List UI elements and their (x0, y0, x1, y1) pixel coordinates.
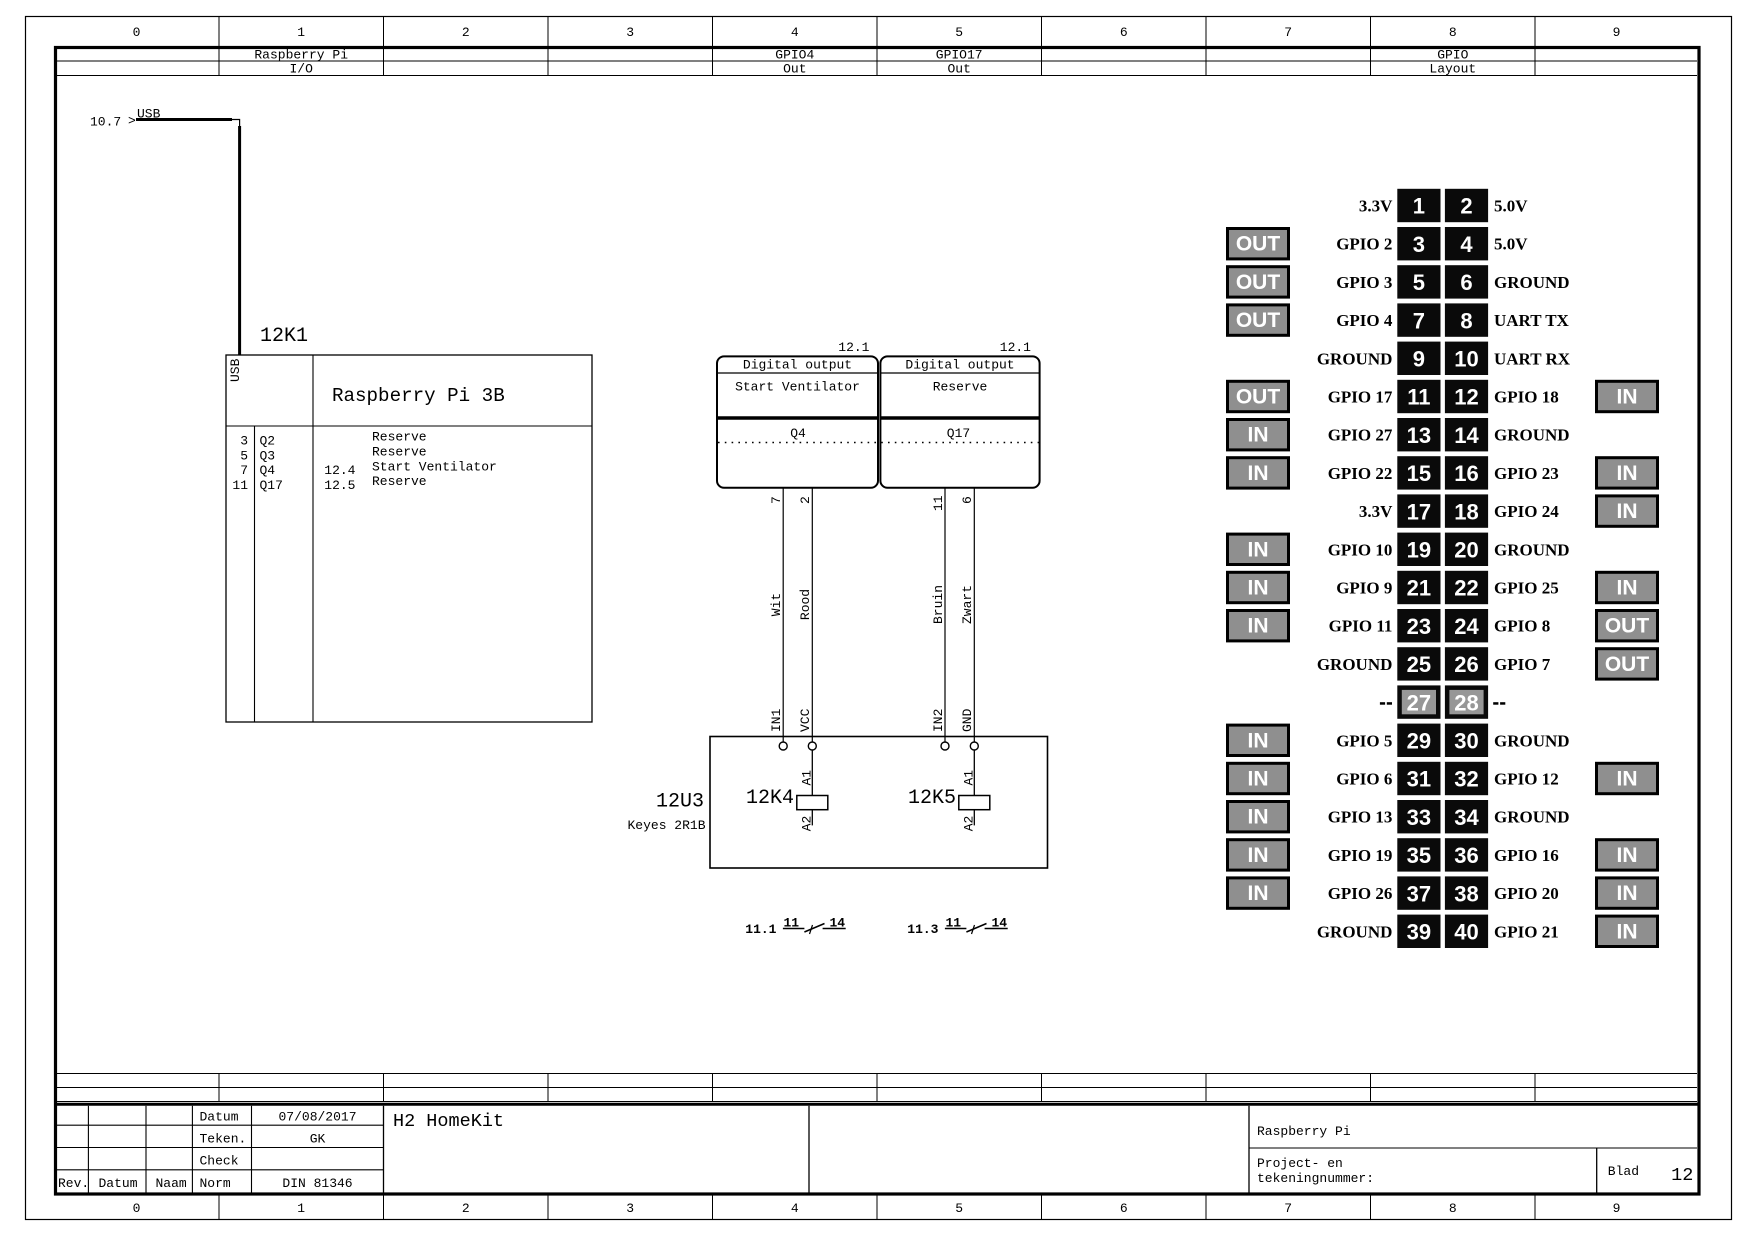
svg-text:Check: Check (200, 1154, 239, 1169)
svg-text:GROUND: GROUND (1317, 349, 1393, 368)
svg-text:12.5: 12.5 (324, 478, 355, 493)
svg-text:Digital output: Digital output (905, 358, 1014, 373)
svg-text:4: 4 (791, 25, 799, 40)
svg-text:38: 38 (1454, 881, 1478, 906)
svg-text:GROUND: GROUND (1317, 655, 1393, 674)
svg-text:27: 27 (1407, 690, 1431, 715)
svg-text:10.7: 10.7 (90, 115, 121, 130)
svg-text:0: 0 (133, 1201, 141, 1216)
svg-text:Bruin: Bruin (931, 585, 946, 624)
svg-text:IN: IN (1617, 768, 1638, 791)
svg-text:8: 8 (1449, 1201, 1457, 1216)
svg-text:GPIO 3: GPIO 3 (1336, 273, 1392, 292)
svg-text:IN: IN (1617, 844, 1638, 867)
svg-text:IN: IN (1617, 577, 1638, 600)
svg-text:A1: A1 (961, 770, 976, 786)
svg-text:Layout: Layout (1429, 62, 1476, 77)
svg-text:21: 21 (1407, 576, 1431, 601)
svg-text:IN: IN (1617, 386, 1638, 409)
svg-text:GPIO 26: GPIO 26 (1328, 884, 1393, 903)
svg-text:GROUND: GROUND (1494, 731, 1570, 750)
svg-text:12.1: 12.1 (838, 340, 869, 355)
svg-text:GROUND: GROUND (1317, 922, 1393, 941)
svg-text:IN: IN (1248, 729, 1269, 752)
svg-text:GPIO 25: GPIO 25 (1494, 579, 1559, 598)
svg-text:Raspberry Pi: Raspberry Pi (254, 48, 348, 63)
svg-text:2: 2 (462, 25, 470, 40)
svg-text:10: 10 (1454, 347, 1478, 372)
svg-text:17: 17 (1407, 499, 1431, 524)
svg-text:13: 13 (1407, 423, 1431, 448)
svg-text:IN: IN (1617, 920, 1638, 943)
svg-text:16: 16 (1454, 461, 1478, 486)
svg-text:Digital output: Digital output (743, 358, 852, 373)
svg-text:IN1: IN1 (769, 708, 784, 732)
svg-text:36: 36 (1454, 843, 1478, 868)
svg-text:H2 HomeKit: H2 HomeKit (393, 1111, 504, 1132)
svg-text:GPIO 11: GPIO 11 (1329, 617, 1393, 636)
svg-text:UART RX: UART RX (1494, 349, 1571, 368)
svg-text:GPIO 9: GPIO 9 (1336, 579, 1392, 598)
svg-text:Out: Out (947, 62, 970, 77)
svg-text:40: 40 (1454, 920, 1478, 945)
svg-text:4: 4 (791, 1201, 799, 1216)
svg-text:4: 4 (1460, 232, 1473, 257)
svg-text:34: 34 (1454, 805, 1479, 830)
svg-text:IN: IN (1248, 615, 1269, 638)
svg-text:15: 15 (1407, 461, 1431, 486)
svg-text:GPIO 10: GPIO 10 (1328, 540, 1393, 559)
svg-text:Q2: Q2 (260, 434, 276, 449)
svg-text:GPIO 8: GPIO 8 (1494, 617, 1550, 636)
svg-text:OUT: OUT (1236, 271, 1281, 294)
svg-text:Wit: Wit (769, 593, 784, 616)
svg-text:3: 3 (1413, 232, 1425, 257)
svg-text:IN: IN (1248, 844, 1269, 867)
svg-text:GROUND: GROUND (1494, 273, 1570, 292)
svg-text:7: 7 (240, 463, 248, 478)
svg-text:07/08/2017: 07/08/2017 (278, 1110, 356, 1125)
svg-text:GPIO 21: GPIO 21 (1494, 922, 1559, 941)
svg-text:31: 31 (1407, 767, 1431, 792)
svg-text:IN: IN (1248, 577, 1269, 600)
svg-text:GPIO4: GPIO4 (775, 48, 814, 63)
svg-text:Q17: Q17 (260, 478, 283, 493)
svg-text:3: 3 (626, 1201, 634, 1216)
svg-text:1: 1 (1413, 194, 1425, 219)
svg-text:IN: IN (1248, 424, 1269, 447)
svg-text:5: 5 (240, 448, 248, 463)
svg-text:USB: USB (228, 358, 243, 382)
svg-text:3: 3 (240, 434, 248, 449)
svg-text:19: 19 (1407, 538, 1431, 563)
svg-text:IN: IN (1248, 538, 1269, 561)
svg-text:Q3: Q3 (260, 448, 276, 463)
svg-text:GPIO 4: GPIO 4 (1336, 311, 1393, 330)
svg-text:>: > (128, 114, 136, 129)
svg-text:5.0V: 5.0V (1494, 197, 1528, 216)
svg-text:3.3V: 3.3V (1359, 197, 1393, 216)
svg-text:Reserve: Reserve (933, 380, 988, 395)
svg-text:8: 8 (1449, 25, 1457, 40)
svg-text:14: 14 (1454, 423, 1479, 448)
svg-text:IN2: IN2 (931, 709, 946, 732)
svg-text:GPIO 19: GPIO 19 (1328, 846, 1393, 865)
svg-text:23: 23 (1407, 614, 1431, 639)
svg-text:Datum: Datum (200, 1110, 239, 1125)
svg-text:OUT: OUT (1605, 615, 1650, 638)
svg-text:Keyes 2R1B: Keyes 2R1B (627, 818, 705, 833)
svg-text:20: 20 (1454, 538, 1478, 563)
svg-text:GPIO 24: GPIO 24 (1494, 502, 1559, 521)
svg-text:OUT: OUT (1605, 653, 1650, 676)
svg-text:33: 33 (1407, 805, 1431, 830)
svg-text:Start Ventilator: Start Ventilator (735, 380, 860, 395)
svg-text:Teken.: Teken. (200, 1132, 247, 1147)
svg-text:DIN 81346: DIN 81346 (282, 1176, 352, 1191)
svg-text:tekeningnummer:: tekeningnummer: (1257, 1171, 1374, 1186)
svg-text:A2: A2 (799, 816, 814, 832)
svg-text:5: 5 (955, 1201, 963, 1216)
svg-text:GND: GND (960, 708, 975, 732)
svg-text:6: 6 (1460, 270, 1472, 295)
svg-text:25: 25 (1407, 652, 1431, 677)
svg-text:3.3V: 3.3V (1359, 502, 1393, 521)
svg-text:OUT: OUT (1236, 386, 1281, 409)
svg-text:IN: IN (1617, 462, 1638, 485)
svg-text:12K1: 12K1 (260, 325, 308, 348)
svg-text:12U3: 12U3 (656, 791, 704, 814)
svg-text:2: 2 (798, 496, 813, 504)
svg-text:7: 7 (1413, 308, 1425, 333)
svg-text:GPIO 13: GPIO 13 (1328, 808, 1393, 827)
svg-text:11: 11 (1407, 385, 1430, 410)
svg-text:35: 35 (1407, 843, 1431, 868)
svg-text:8: 8 (1460, 308, 1472, 333)
svg-text:Datum: Datum (99, 1176, 138, 1191)
svg-text:Q4: Q4 (260, 463, 276, 478)
svg-text:9: 9 (1413, 347, 1425, 372)
svg-text:Raspberry Pi: Raspberry Pi (1257, 1124, 1351, 1139)
svg-text:A2: A2 (961, 816, 976, 832)
svg-text:Naam: Naam (156, 1176, 187, 1191)
svg-text:22: 22 (1454, 576, 1478, 601)
svg-text:GROUND: GROUND (1494, 426, 1570, 445)
svg-text:24: 24 (1454, 614, 1479, 639)
svg-text:GPIO 17: GPIO 17 (1328, 388, 1393, 407)
svg-text:GROUND: GROUND (1494, 808, 1570, 827)
svg-text:26: 26 (1454, 652, 1478, 677)
svg-text:7: 7 (1284, 25, 1292, 40)
svg-text:IN: IN (1248, 806, 1269, 829)
svg-text:Rev.: Rev. (58, 1176, 89, 1191)
svg-text:11: 11 (232, 478, 248, 493)
svg-text:UART TX: UART TX (1494, 311, 1570, 330)
svg-text:GPIO 7: GPIO 7 (1494, 655, 1551, 674)
svg-text:7: 7 (769, 496, 784, 504)
svg-text:GPIO 27: GPIO 27 (1328, 426, 1393, 445)
svg-text:6: 6 (1120, 25, 1128, 40)
svg-text:9: 9 (1613, 1201, 1621, 1216)
svg-text:GK: GK (310, 1132, 326, 1147)
svg-text:GPIO 5: GPIO 5 (1336, 731, 1392, 750)
svg-text:GPIO 22: GPIO 22 (1328, 464, 1393, 483)
svg-text:IN: IN (1248, 882, 1269, 905)
svg-text:11.3: 11.3 (907, 922, 938, 937)
svg-text:GPIO 12: GPIO 12 (1494, 770, 1559, 789)
svg-text:GPIO 18: GPIO 18 (1494, 388, 1559, 407)
svg-text:Zwart: Zwart (960, 585, 975, 624)
svg-text:GPIO: GPIO (1437, 48, 1468, 63)
svg-text:Out: Out (783, 62, 806, 77)
svg-text:5: 5 (1413, 270, 1425, 295)
svg-text:Raspberry Pi 3B: Raspberry Pi 3B (332, 385, 505, 407)
svg-text:A1: A1 (799, 770, 814, 786)
svg-text:VCC: VCC (798, 708, 813, 732)
svg-text:37: 37 (1407, 881, 1431, 906)
svg-text:GPIO 2: GPIO 2 (1336, 235, 1392, 254)
svg-text:18: 18 (1454, 499, 1478, 524)
svg-text:2: 2 (1460, 194, 1472, 219)
svg-text:3: 3 (626, 25, 634, 40)
svg-text:IN: IN (1617, 500, 1638, 523)
svg-text:6: 6 (960, 496, 975, 504)
svg-text:11.1: 11.1 (745, 922, 776, 937)
svg-text:12: 12 (1671, 1165, 1693, 1186)
svg-text:I/O: I/O (289, 62, 313, 77)
svg-text:30: 30 (1454, 729, 1478, 754)
svg-text:5.0V: 5.0V (1494, 235, 1528, 254)
svg-text:IN: IN (1248, 462, 1269, 485)
svg-text:GPIO 6: GPIO 6 (1336, 770, 1392, 789)
svg-text:Reserve: Reserve (372, 430, 427, 445)
svg-text:28: 28 (1454, 690, 1478, 715)
svg-text:Q4: Q4 (790, 426, 806, 441)
svg-text:GPIO17: GPIO17 (936, 48, 983, 63)
svg-text:29: 29 (1407, 729, 1431, 754)
svg-text:GPIO 20: GPIO 20 (1494, 884, 1559, 903)
svg-text:Reserve: Reserve (372, 445, 427, 460)
svg-text:IN: IN (1617, 882, 1638, 905)
svg-text:12.4: 12.4 (324, 463, 355, 478)
svg-text:Q17: Q17 (947, 426, 970, 441)
svg-text:Rood: Rood (798, 589, 813, 620)
svg-text:11: 11 (931, 495, 946, 511)
svg-text:5: 5 (955, 25, 963, 40)
svg-text:Reserve: Reserve (372, 474, 427, 489)
svg-text:GPIO 23: GPIO 23 (1494, 464, 1559, 483)
svg-text:Project- en: Project- en (1257, 1156, 1343, 1171)
svg-text:1: 1 (297, 25, 305, 40)
svg-text:OUT: OUT (1236, 309, 1281, 332)
svg-text:2: 2 (462, 1201, 470, 1216)
svg-text:12.1: 12.1 (1000, 340, 1031, 355)
svg-text:Norm: Norm (200, 1176, 231, 1191)
svg-text:6: 6 (1120, 1201, 1128, 1216)
svg-text:32: 32 (1454, 767, 1478, 792)
svg-text:IN: IN (1248, 768, 1269, 791)
svg-text:GROUND: GROUND (1494, 540, 1570, 559)
svg-text:0: 0 (133, 25, 141, 40)
svg-text:OUT: OUT (1236, 233, 1281, 256)
svg-text:12: 12 (1454, 385, 1478, 410)
svg-text:12K5: 12K5 (908, 787, 956, 810)
svg-text:Start Ventilator: Start Ventilator (372, 459, 497, 474)
svg-text:9: 9 (1613, 25, 1621, 40)
svg-text:39: 39 (1407, 920, 1431, 945)
svg-text:7: 7 (1284, 1201, 1292, 1216)
svg-text:GPIO 16: GPIO 16 (1494, 846, 1559, 865)
svg-text:1: 1 (297, 1201, 305, 1216)
svg-text:Blad: Blad (1608, 1164, 1639, 1179)
svg-text:12K4: 12K4 (746, 787, 794, 810)
